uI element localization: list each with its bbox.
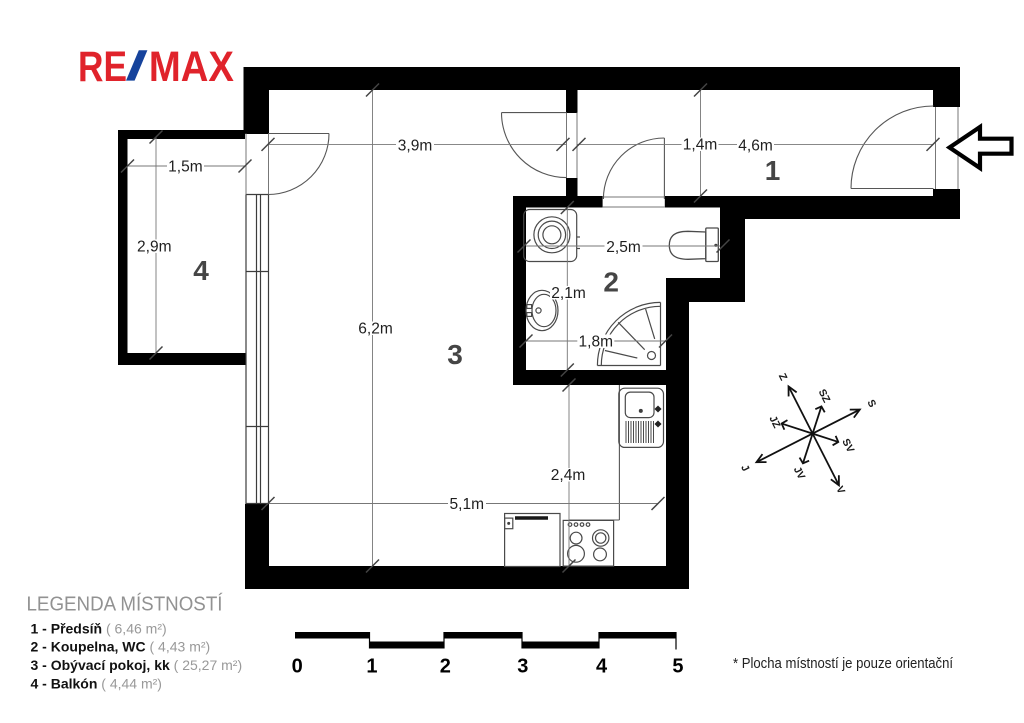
svg-text:2,4m: 2,4m xyxy=(551,467,586,484)
svg-text:3,9m: 3,9m xyxy=(398,137,433,154)
svg-text:* Plocha místností je pouze or: * Plocha místností je pouze orientační xyxy=(733,655,954,672)
svg-text:2,9m: 2,9m xyxy=(137,238,172,255)
svg-text:3 - Obývací pokoj, kk ( 25,27: 3 - Obývací pokoj, kk ( 25,27 m²) xyxy=(31,657,243,673)
svg-text:2 - Koupelna, WC ( 4,43 m²): 2 - Koupelna, WC ( 4,43 m²) xyxy=(31,639,211,655)
svg-text:1,8m: 1,8m xyxy=(579,334,614,351)
svg-text:2: 2 xyxy=(440,656,451,678)
svg-text:4: 4 xyxy=(193,255,209,286)
svg-text:1: 1 xyxy=(366,656,377,678)
svg-text:5,1m: 5,1m xyxy=(450,496,485,513)
svg-text:5: 5 xyxy=(672,656,683,678)
svg-text:2,5m: 2,5m xyxy=(606,239,641,256)
svg-text:1 - Předsíň ( 6,46 m²): 1 - Předsíň ( 6,46 m²) xyxy=(31,621,167,637)
svg-text:2,1m: 2,1m xyxy=(551,285,586,302)
svg-text:0: 0 xyxy=(292,656,303,678)
svg-text:4,6m: 4,6m xyxy=(738,137,773,154)
svg-text:6,2m: 6,2m xyxy=(358,321,393,338)
svg-text:3: 3 xyxy=(447,339,463,370)
svg-text:4: 4 xyxy=(596,656,608,678)
svg-text:1: 1 xyxy=(765,155,781,186)
svg-text:RE: RE xyxy=(78,43,127,91)
svg-text:4 - Balkón ( 4,44 m²): 4 - Balkón ( 4,44 m²) xyxy=(31,676,162,692)
svg-text:MAX: MAX xyxy=(149,43,234,91)
svg-text:1,5m: 1,5m xyxy=(168,159,203,176)
svg-text:1,4m: 1,4m xyxy=(683,137,718,154)
svg-text:2: 2 xyxy=(603,267,619,298)
svg-text:3: 3 xyxy=(517,656,528,678)
svg-text:LEGENDA MÍSTNOSTÍ: LEGENDA MÍSTNOSTÍ xyxy=(27,593,223,616)
